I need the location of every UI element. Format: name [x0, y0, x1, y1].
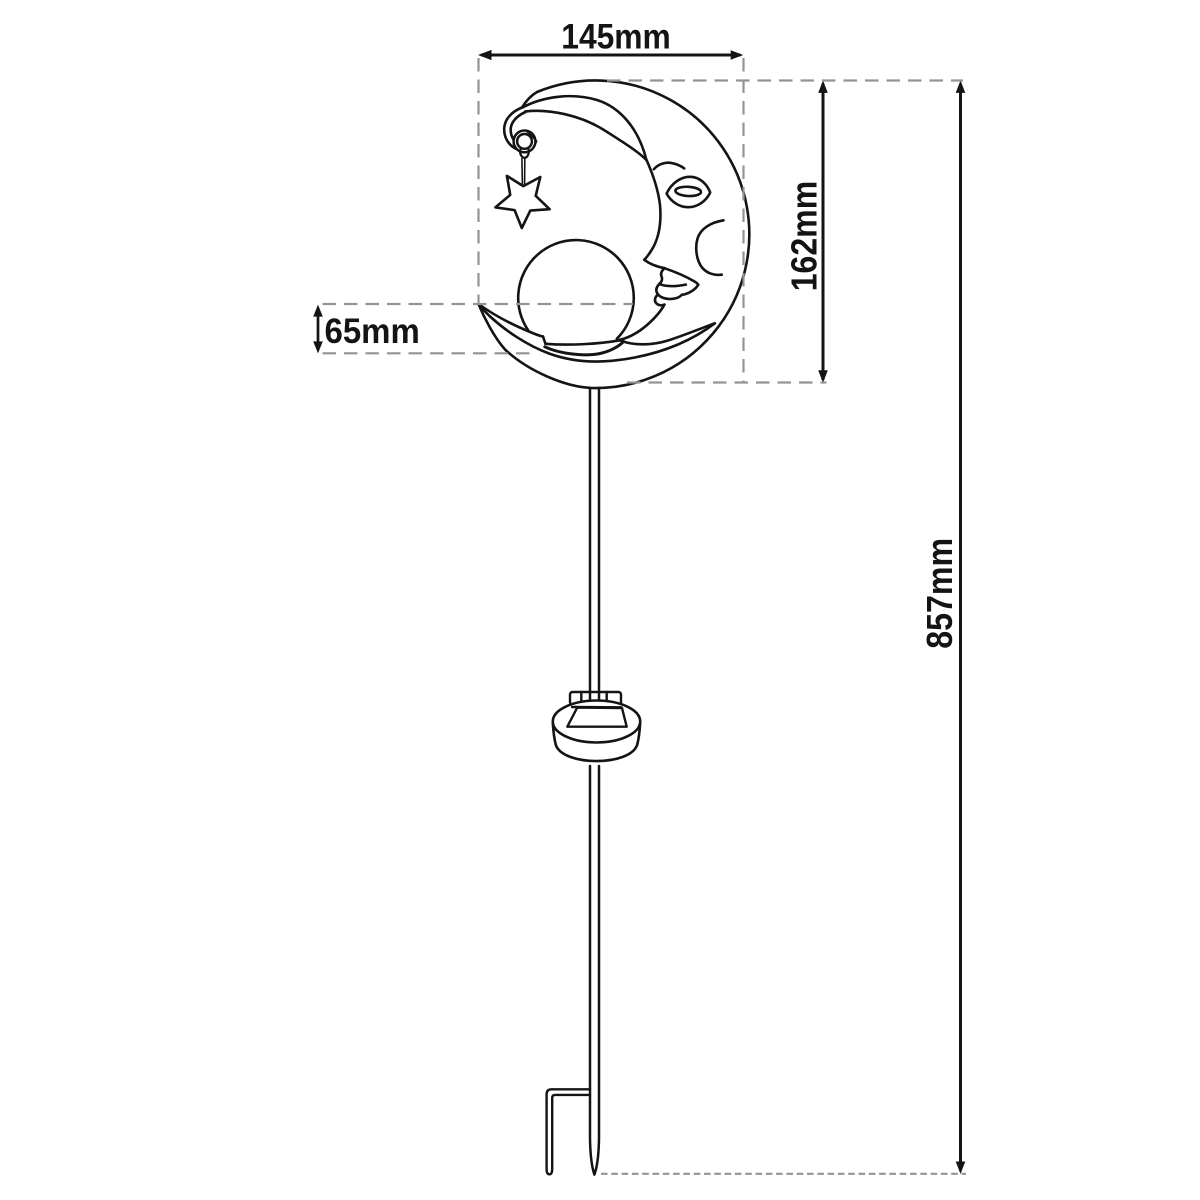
svg-text:162mm: 162mm — [783, 181, 824, 292]
svg-text:65mm: 65mm — [325, 311, 420, 351]
svg-text:145mm: 145mm — [561, 17, 671, 57]
svg-text:857mm: 857mm — [919, 538, 960, 649]
